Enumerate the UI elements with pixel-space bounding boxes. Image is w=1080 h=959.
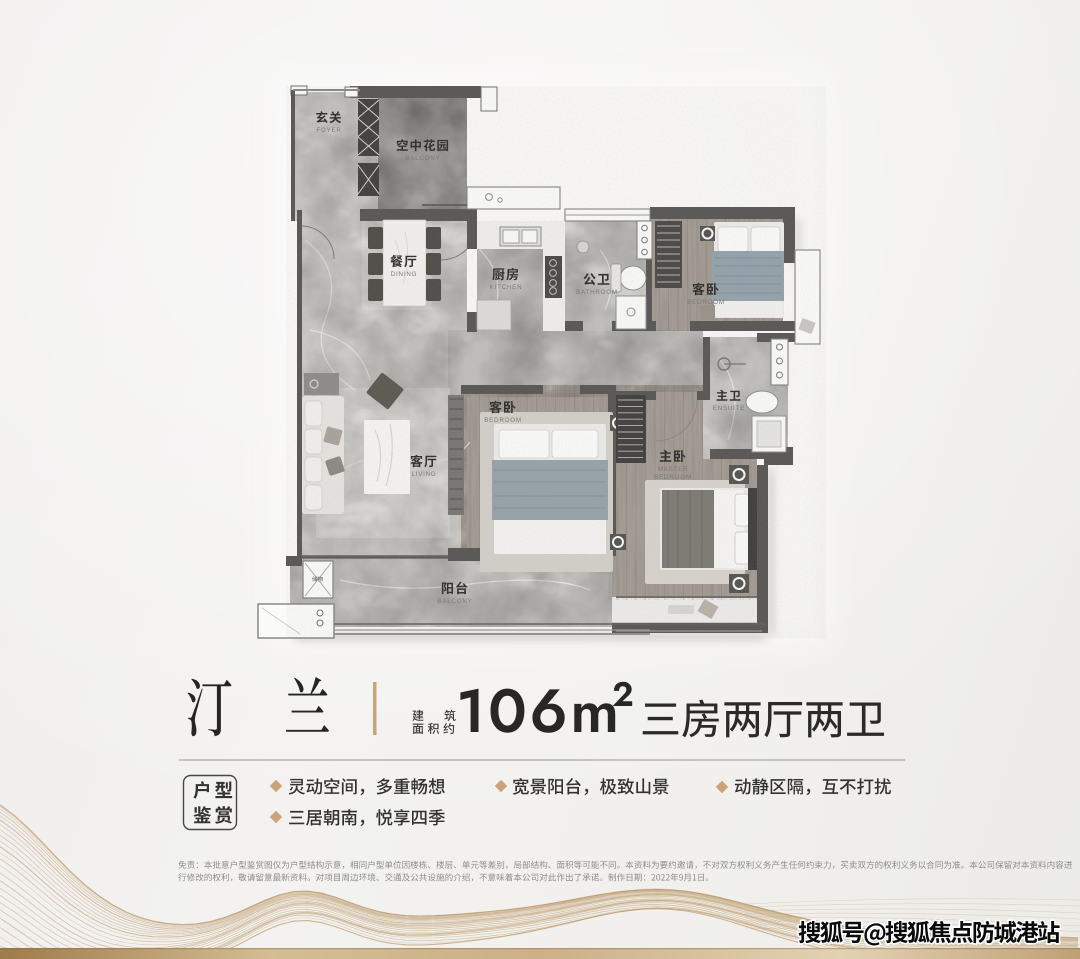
svg-text:KITCHEN: KITCHEN xyxy=(490,284,523,291)
svg-text:ENSUITE: ENSUITE xyxy=(713,405,745,412)
svg-text:LIVING: LIVING xyxy=(411,471,436,478)
svg-text:BATHROOM: BATHROOM xyxy=(576,289,618,296)
svg-text:BEDROOM: BEDROOM xyxy=(484,417,522,424)
svg-text:BEDROOM: BEDROOM xyxy=(687,299,725,306)
svg-text:DINING: DINING xyxy=(391,271,417,278)
svg-text:FOYER: FOYER xyxy=(316,127,341,134)
svg-text:BEDROOM: BEDROOM xyxy=(654,474,692,481)
svg-text:MASTER: MASTER xyxy=(658,466,689,473)
svg-text:BALCONY: BALCONY xyxy=(405,155,440,162)
svg-text:BALCONY: BALCONY xyxy=(437,598,472,605)
